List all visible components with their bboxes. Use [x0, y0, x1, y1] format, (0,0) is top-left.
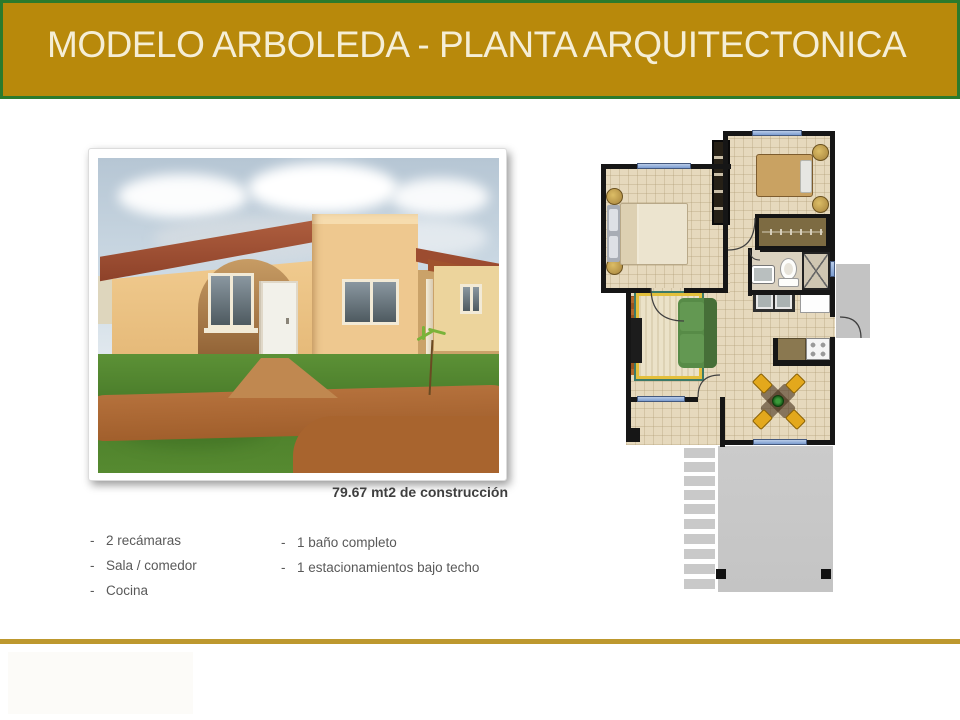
feature-item: -Cocina	[90, 583, 275, 608]
distant-house-window	[460, 284, 482, 314]
facade-window-right	[342, 279, 399, 325]
floor-plan	[600, 128, 872, 606]
cloud	[248, 163, 398, 213]
bullet-dash: -	[281, 560, 297, 575]
window-divider	[230, 276, 233, 325]
door-arc-front	[698, 375, 720, 397]
door-handle	[286, 318, 289, 324]
cloud	[391, 178, 489, 216]
window-divider	[370, 282, 373, 322]
bullet-dash: -	[90, 583, 106, 598]
window-sill	[204, 328, 258, 333]
feature-item: -Sala / comedor	[90, 558, 275, 583]
feature-item: -2 recámaras	[90, 533, 275, 558]
door-arc-bedroom2	[728, 218, 755, 250]
window-divider	[470, 287, 473, 311]
construction-area-caption: 79.67 mt2 de construcción	[238, 484, 508, 500]
title-banner: MODELO ARBOLEDA - PLANTA ARQUITECTONICA	[0, 0, 960, 99]
door-swing-arcs	[600, 128, 872, 606]
feature-text: Sala / comedor	[106, 558, 197, 573]
footer-watermark-block	[8, 652, 193, 714]
bullet-dash: -	[90, 558, 106, 573]
door-arc-bathroom	[750, 250, 760, 260]
sapling-frond	[422, 326, 425, 340]
dirt-corner	[293, 416, 499, 473]
house-photo	[98, 158, 499, 473]
slide-title: MODELO ARBOLEDA - PLANTA ARQUITECTONICA	[47, 24, 906, 66]
slide-canvas: MODELO ARBOLEDA - PLANTA ARQUITECTONICA	[0, 0, 960, 720]
feature-item: -1 estacionamientos bajo techo	[281, 560, 511, 585]
feature-list-right: -1 baño completo -1 estacionamientos baj…	[281, 535, 511, 585]
bullet-dash: -	[281, 535, 297, 550]
facade-window-left	[208, 273, 254, 328]
cloud	[118, 174, 248, 218]
distant-house-left	[98, 276, 114, 324]
feature-text: 1 estacionamientos bajo techo	[297, 560, 479, 575]
door-arc-master	[651, 288, 684, 321]
feature-text: Cocina	[106, 583, 148, 598]
house-photo-frame	[88, 148, 507, 481]
feature-item: -1 baño completo	[281, 535, 511, 560]
bullet-dash: -	[90, 533, 106, 548]
door-arc-carport	[840, 317, 861, 338]
bottom-divider-line	[0, 639, 960, 644]
front-door	[259, 281, 298, 361]
feature-list-left: -2 recámaras -Sala / comedor -Cocina	[90, 533, 275, 608]
feature-text: 2 recámaras	[106, 533, 181, 548]
feature-text: 1 baño completo	[297, 535, 397, 550]
